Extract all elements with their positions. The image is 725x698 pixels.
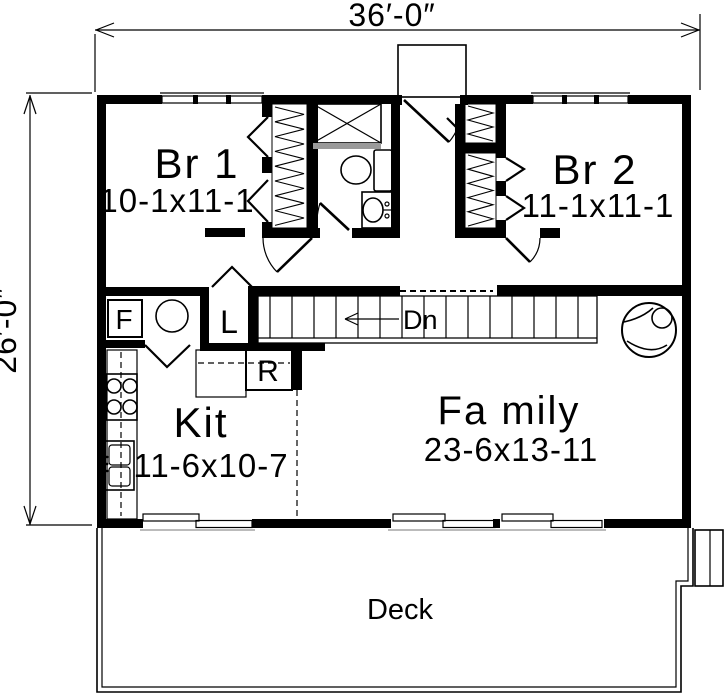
peninsula-counter (196, 350, 246, 397)
bath-door-leaf (320, 203, 349, 230)
bedroom1-window (160, 93, 264, 104)
range-label: R (257, 355, 279, 388)
floor-plan-page: 36′-0″ 26′-0″ (0, 0, 725, 698)
bedroom2-closets (465, 104, 524, 228)
entry-stoop (398, 45, 466, 97)
width-dimension-label: 36′-0″ (348, 0, 435, 33)
tub-apron (313, 143, 381, 149)
room-size-family: 23-6x13-11 (424, 431, 599, 468)
room-label-br2: Br 2 (552, 146, 637, 193)
toilet-bowl (341, 156, 371, 184)
room-label-br1: Br 1 (154, 140, 239, 187)
utility-bifold-door (145, 345, 190, 367)
closet-door-chevron (248, 117, 268, 157)
room-size-br1: 10-1x11-1 (99, 182, 254, 219)
kitchen-counter (107, 350, 137, 519)
front-door (404, 100, 463, 142)
bathroom (313, 104, 393, 233)
toilet-tank (374, 150, 392, 191)
stair-direction-label: Dn (403, 305, 438, 335)
linen-closet-bifold-door (212, 267, 252, 287)
bedroom1-door (263, 238, 312, 272)
wood-stove (622, 303, 676, 357)
lavatory-sink (363, 198, 383, 222)
room-label-kitchen: Kit (173, 399, 228, 446)
room-label-deck: Deck (367, 594, 434, 626)
linen-label: L (220, 304, 238, 340)
furnace-label: F (115, 304, 132, 335)
floor-plan-svg: 36′-0″ 26′-0″ (0, 0, 725, 698)
bedroom2-door (506, 238, 540, 262)
closet-door-chevron (506, 158, 524, 181)
left-dimension: 26′-0″ (0, 93, 92, 525)
bedroom1-closet (248, 104, 307, 228)
bedroom2-window (531, 93, 630, 104)
deck-steps (695, 530, 723, 586)
room-size-kitchen: 11-6x10-7 (133, 447, 288, 484)
height-dimension-label: 26′-0″ (0, 286, 23, 373)
water-heater (156, 300, 188, 332)
room-size-br2: 11-1x11-1 (522, 187, 675, 224)
room-label-family: Fa mily (438, 389, 581, 433)
